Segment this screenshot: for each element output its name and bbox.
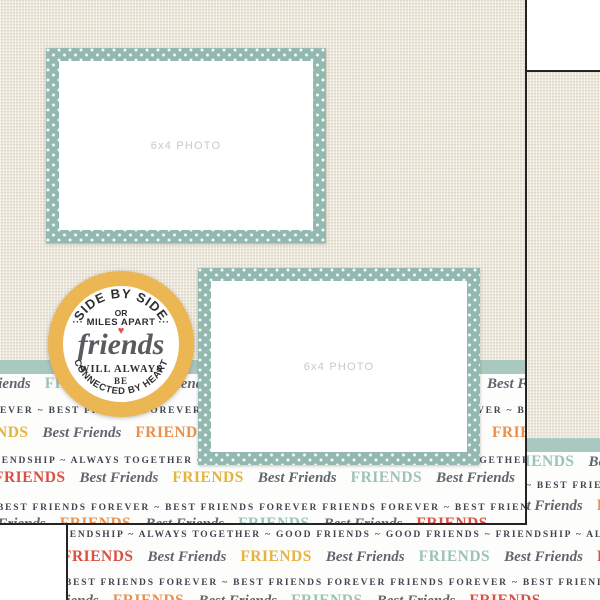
pattern-word-script: Best Friends (198, 593, 277, 600)
photo-placeholder-label: 6x4 PHOTO (151, 140, 222, 152)
pattern-word-script: Best Friends (504, 549, 583, 565)
pattern-row: FRIENDSBest FriendsFRIENDSBest FriendsFR… (0, 468, 527, 488)
pattern-word-script: Best Friends (258, 470, 337, 486)
pattern-word-red: FRIENDS (66, 548, 134, 565)
pattern-word-caps: FRIENDSHIP ~ ALWAYS TOGETHER ~ GOOD FRIE… (66, 530, 600, 540)
badge-friends-word: friends (48, 328, 194, 362)
pattern-word-script: Best Friends (436, 470, 515, 486)
photo-frame-top: 6x4 PHOTO (46, 48, 326, 243)
pattern-row: FRIENDSBest FriendsFRIENDSBest FriendsFR… (68, 547, 600, 567)
pattern-word-yellow: FRIENDS (240, 548, 312, 565)
friends-badge: SIDE BY SIDE CONNECTED BY HEART OR ··· M… (48, 271, 194, 417)
pattern-word-script: Best Friends (80, 470, 159, 486)
pattern-word-yellow: FRIENDS (0, 424, 29, 441)
pattern-row: Best FriendsFRIENDSBest FriendsFRIENDSBe… (0, 514, 527, 525)
photo-frame-top-inner: 6x4 PHOTO (59, 61, 313, 230)
pattern-row: Best FriendsFRIENDSBest FriendsFRIENDSBe… (68, 591, 600, 600)
pattern-word-script: Best Friends (589, 454, 600, 470)
pattern-word-red: FRIENDS (469, 592, 541, 600)
pattern-word-orange: FRIENDS (492, 424, 527, 441)
pattern-word-script: Best Friends (0, 376, 31, 392)
pattern-word-caps: BEST FRIENDS FOREVER ~ BEST FRIENDS FORE… (66, 578, 600, 588)
pattern-word-caps: ~ BEST FRIENDS FOREVER ~ BEST FR (526, 481, 600, 491)
pattern-word-red: FRIENDS (0, 469, 66, 486)
pattern-word-script: Best Friends (324, 516, 403, 525)
badge-will-always-text: WILL ALWAYS (48, 364, 194, 375)
pattern-word-script: Best Friends (66, 593, 99, 600)
front-sheet: Best FriendsFRIENDSBest FriendsFRIENDSBe… (0, 0, 527, 525)
scrapbook-paper-product-image: FRIENDSBest FriendsFRIENDS~ BEST FRIENDS… (0, 0, 600, 600)
pattern-word-script: Best Friends (377, 593, 456, 600)
pattern-word-caps: BEST FRIENDS FOREVER ~ BEST FRIENDS FORE… (0, 503, 527, 513)
pattern-word-teal: FRIENDS (291, 592, 363, 600)
badge-be-text: BE (48, 376, 194, 386)
photo-placeholder-label: 6x4 PHOTO (304, 361, 375, 373)
photo-frame-bottom: 6x4 PHOTO (198, 268, 480, 465)
pattern-word-red: FRIENDS (416, 515, 488, 525)
pattern-word-orange: FRIENDS (60, 515, 132, 525)
pattern-word-script: Best Friends (148, 549, 227, 565)
pattern-word-yellow: FRIENDS (172, 469, 244, 486)
pattern-word-teal: FRIENDS (238, 515, 310, 525)
photo-frame-bottom-inner: 6x4 PHOTO (211, 281, 467, 452)
pattern-word-orange: FRIENDS (135, 424, 207, 441)
pattern-word-script: Best Friends (326, 549, 405, 565)
pattern-row: BEST FRIENDS FOREVER ~ BEST FRIENDS FORE… (68, 575, 600, 589)
pattern-word-script: Best Friends (145, 516, 224, 525)
pattern-word-script: Best Friends (43, 425, 122, 441)
pattern-word-orange: FRIENDS (113, 592, 185, 600)
pattern-row: FRIENDSHIP ~ ALWAYS TOGETHER ~ GOOD FRIE… (68, 527, 600, 541)
pattern-word-teal: FRIENDS (351, 469, 423, 486)
pattern-word-teal: FRIENDS (419, 548, 491, 565)
pattern-word-script: Best Friends (0, 516, 46, 525)
pattern-word-script: Best Friends (487, 376, 527, 392)
pattern-row: BEST FRIENDS FOREVER ~ BEST FRIENDS FORE… (0, 500, 527, 514)
